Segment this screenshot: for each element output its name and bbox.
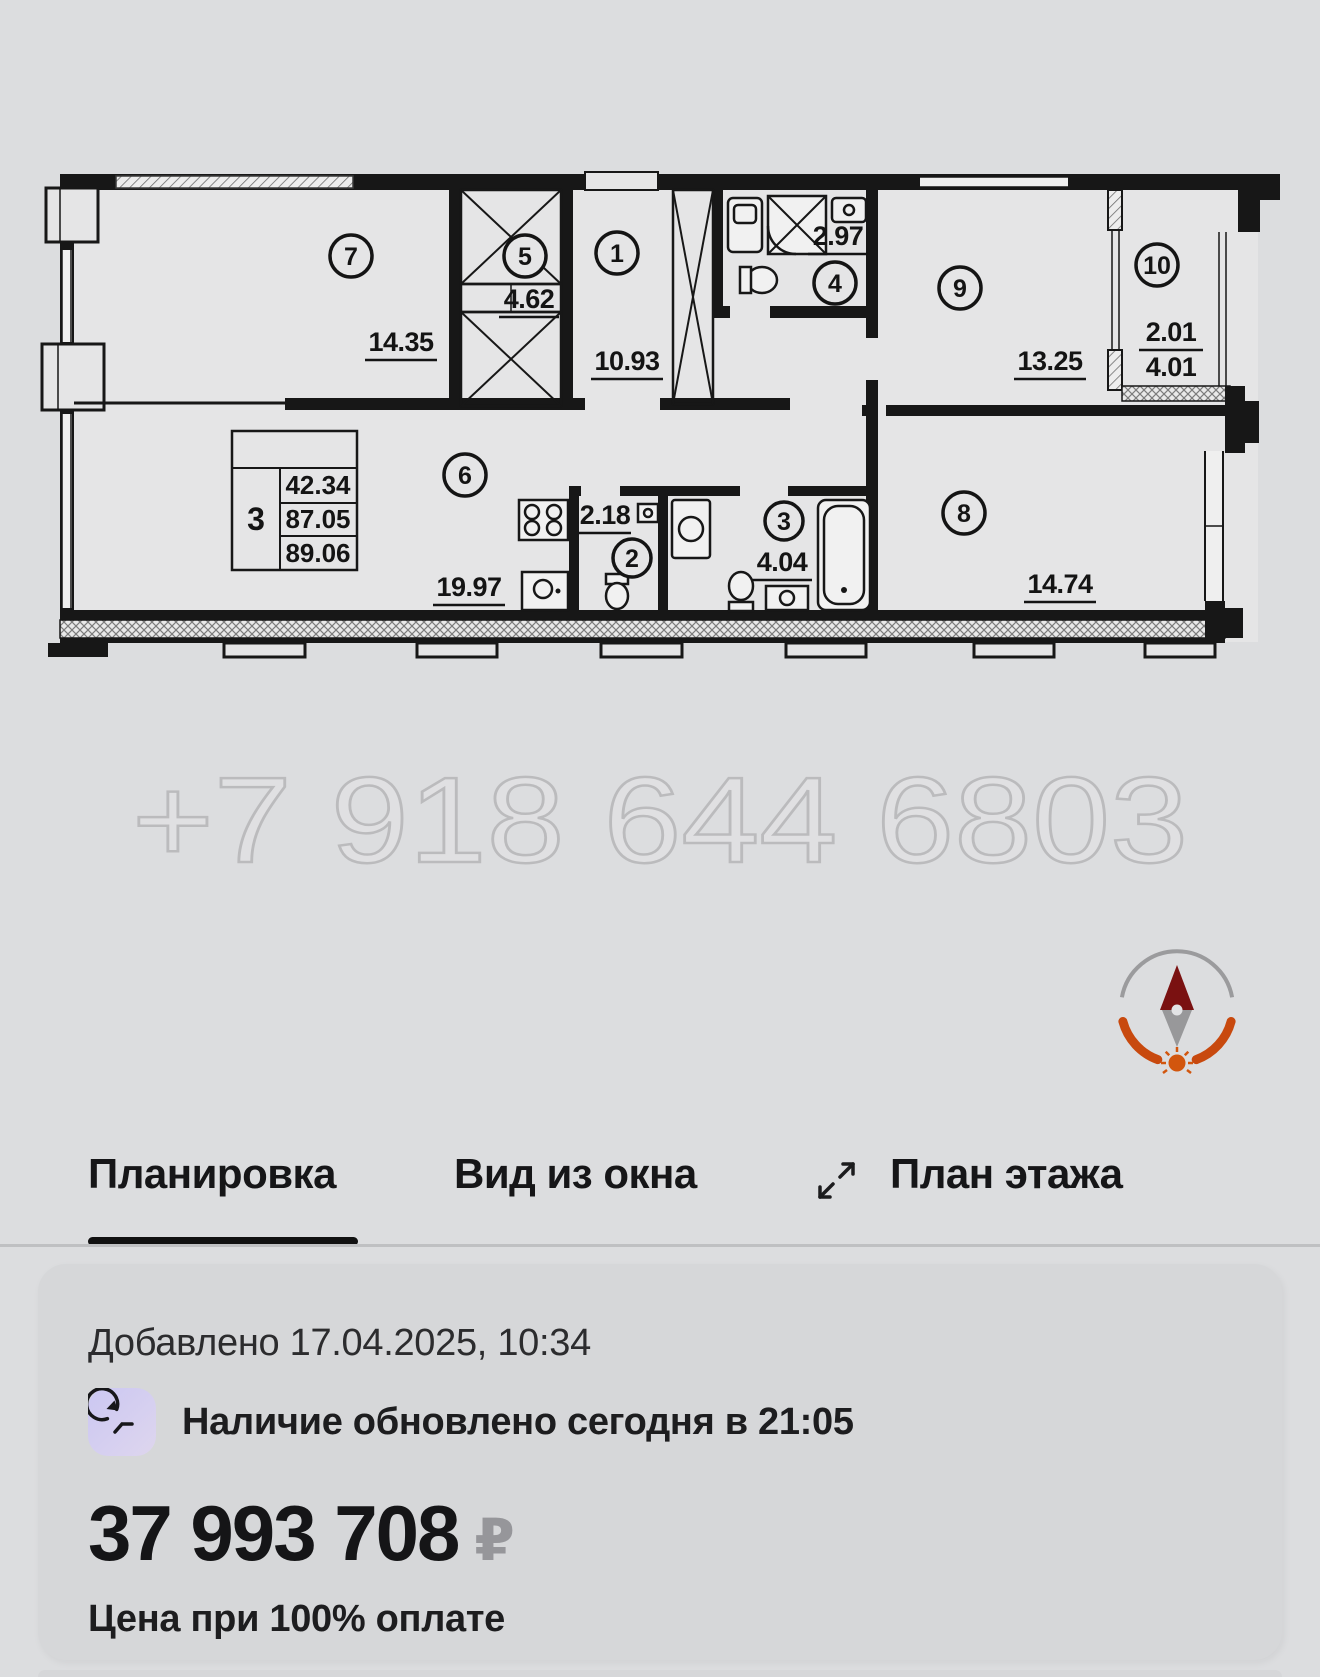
price-row: 37 993 708 ₽ <box>88 1488 515 1579</box>
added-date-label: Добавлено 17.04.2025, 10:34 <box>88 1322 591 1365</box>
room-area: 2.97 <box>813 221 864 251</box>
sun-icon <box>1161 1047 1193 1073</box>
room-number: 1 <box>610 240 624 268</box>
table-area-total: 89.06 <box>285 538 350 568</box>
listing-page: 3 42.34 87.05 89.06 7 14.35 5 4.62 1 10.… <box>0 0 1320 1677</box>
room-number: 10 <box>1143 252 1171 280</box>
tab-floor-plan[interactable]: План этажа <box>890 1150 1122 1198</box>
compass-arc-orange-left <box>1123 1022 1158 1060</box>
room-number: 8 <box>957 500 971 528</box>
room-area: 13.25 <box>1017 346 1083 376</box>
listing-info-card: Добавлено 17.04.2025, 10:34 Наличие обно… <box>38 1264 1282 1660</box>
expand-icon[interactable] <box>814 1158 860 1204</box>
room-area: 14.35 <box>368 327 434 357</box>
tab-layout[interactable]: Планировка <box>88 1150 336 1198</box>
room-number: 2 <box>625 545 639 573</box>
room-number: 7 <box>344 243 358 271</box>
room-area: 14.74 <box>1027 569 1093 599</box>
compass-sun-widget <box>1105 935 1250 1080</box>
room-area: 10.93 <box>594 346 660 376</box>
svg-text:+7 918 644 6803: +7 918 644 6803 <box>132 752 1188 888</box>
availability-label: Наличие обновлено сегодня в 21:05 <box>182 1401 854 1444</box>
compass-north-arrow <box>1160 965 1194 1010</box>
availability-row: Наличие обновлено сегодня в 21:05 <box>88 1388 854 1456</box>
compass-arc-orange-right <box>1196 1022 1231 1060</box>
room-area: 19.97 <box>436 572 501 602</box>
currency-symbol: ₽ <box>474 1506 514 1574</box>
room-area: 2.18 <box>580 500 631 530</box>
compass-south-tail <box>1162 1010 1192 1047</box>
room-area: 4.04 <box>757 547 808 577</box>
watermark-phone: +7 918 644 6803 <box>40 738 1280 888</box>
room-number: 5 <box>518 243 532 271</box>
availability-clock-icon <box>88 1388 156 1456</box>
tabbar-divider <box>0 1244 1320 1247</box>
room-area: 2.01 <box>1146 317 1197 347</box>
plan-facade-teeth <box>224 643 1215 657</box>
price-value: 37 993 708 <box>88 1488 458 1579</box>
room-number: 6 <box>458 462 472 490</box>
table-area-living: 42.34 <box>285 470 351 500</box>
room-area: 4.62 <box>504 284 555 314</box>
room-number: 9 <box>953 275 967 303</box>
table-area-main: 87.05 <box>285 504 350 534</box>
compass-pivot <box>1172 1005 1183 1016</box>
next-card-sliver <box>38 1670 1282 1677</box>
room-number: 3 <box>777 508 791 536</box>
price-note: Цена при 100% оплате <box>88 1598 505 1641</box>
room-number: 4 <box>828 270 842 298</box>
floor-plan-drawing: 3 42.34 87.05 89.06 7 14.35 5 4.62 1 10.… <box>40 158 1280 663</box>
tab-window-view[interactable]: Вид из окна <box>454 1150 697 1198</box>
room-area-lower: 4.01 <box>1146 352 1197 382</box>
table-rooms-count: 3 <box>247 501 265 537</box>
